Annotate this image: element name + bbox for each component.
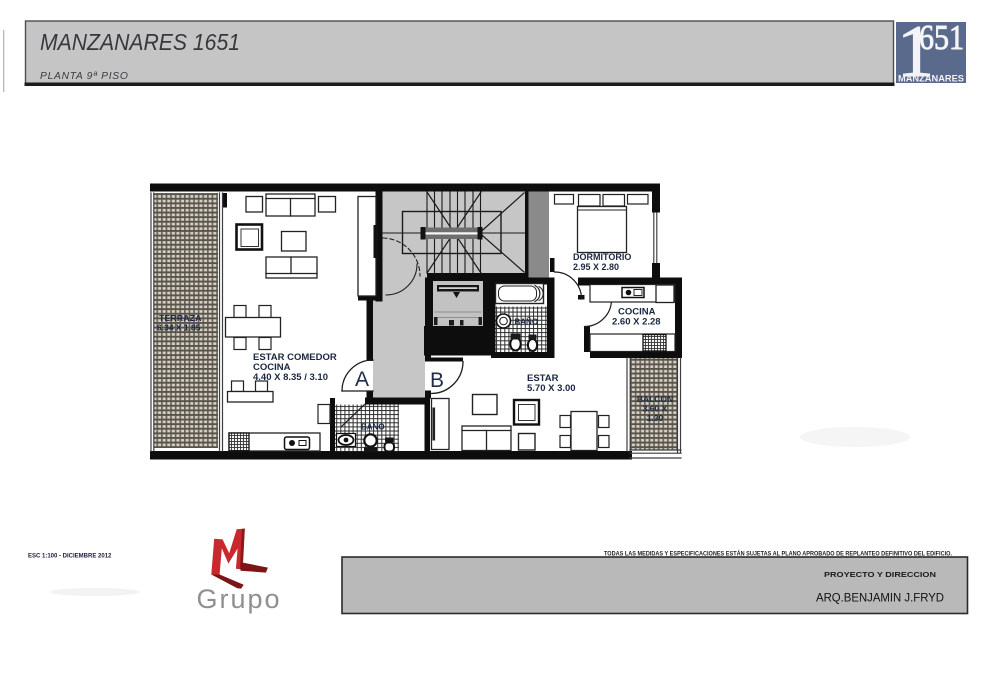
svg-text:5.70 X 3.00: 5.70 X 3.00 bbox=[527, 383, 576, 394]
svg-text:ARQ.BENJAMIN J.FRYD: ARQ.BENJAMIN J.FRYD bbox=[816, 591, 944, 605]
svg-text:2.60 X 2.28: 2.60 X 2.28 bbox=[612, 317, 661, 328]
svg-text:651: 651 bbox=[919, 18, 964, 57]
svg-text:2.95 X 2.80: 2.95 X 2.80 bbox=[573, 262, 619, 272]
svg-text:A: A bbox=[355, 368, 369, 391]
svg-text:Grupo: Grupo bbox=[196, 584, 281, 614]
svg-text:MANZANARES 1651: MANZANARES 1651 bbox=[40, 29, 240, 55]
svg-text:BAÑO: BAÑO bbox=[515, 318, 539, 327]
svg-text:4.40 X 8.35 / 3.10: 4.40 X 8.35 / 3.10 bbox=[253, 372, 328, 383]
svg-text:3.60 X: 3.60 X bbox=[643, 404, 668, 414]
svg-text:TERRAZA: TERRAZA bbox=[159, 313, 202, 323]
svg-text:MANZANARES: MANZANARES bbox=[898, 74, 964, 84]
svg-text:BAÑO: BAÑO bbox=[361, 423, 385, 432]
svg-text:ESC 1:100 - DICIEMBRE 2012: ESC 1:100 - DICIEMBRE 2012 bbox=[28, 554, 112, 560]
svg-text:PROYECTO Y DIRECCION: PROYECTO Y DIRECCION bbox=[824, 572, 936, 579]
svg-text:BALCON: BALCON bbox=[637, 394, 673, 404]
svg-text:6.34 X 1.85: 6.34 X 1.85 bbox=[157, 323, 201, 333]
svg-text:B: B bbox=[430, 369, 444, 392]
svg-text:PLANTA 9ª PISO: PLANTA 9ª PISO bbox=[40, 71, 129, 82]
svg-text:DORMITORIO: DORMITORIO bbox=[573, 252, 631, 262]
svg-text:1.30: 1.30 bbox=[647, 413, 664, 423]
